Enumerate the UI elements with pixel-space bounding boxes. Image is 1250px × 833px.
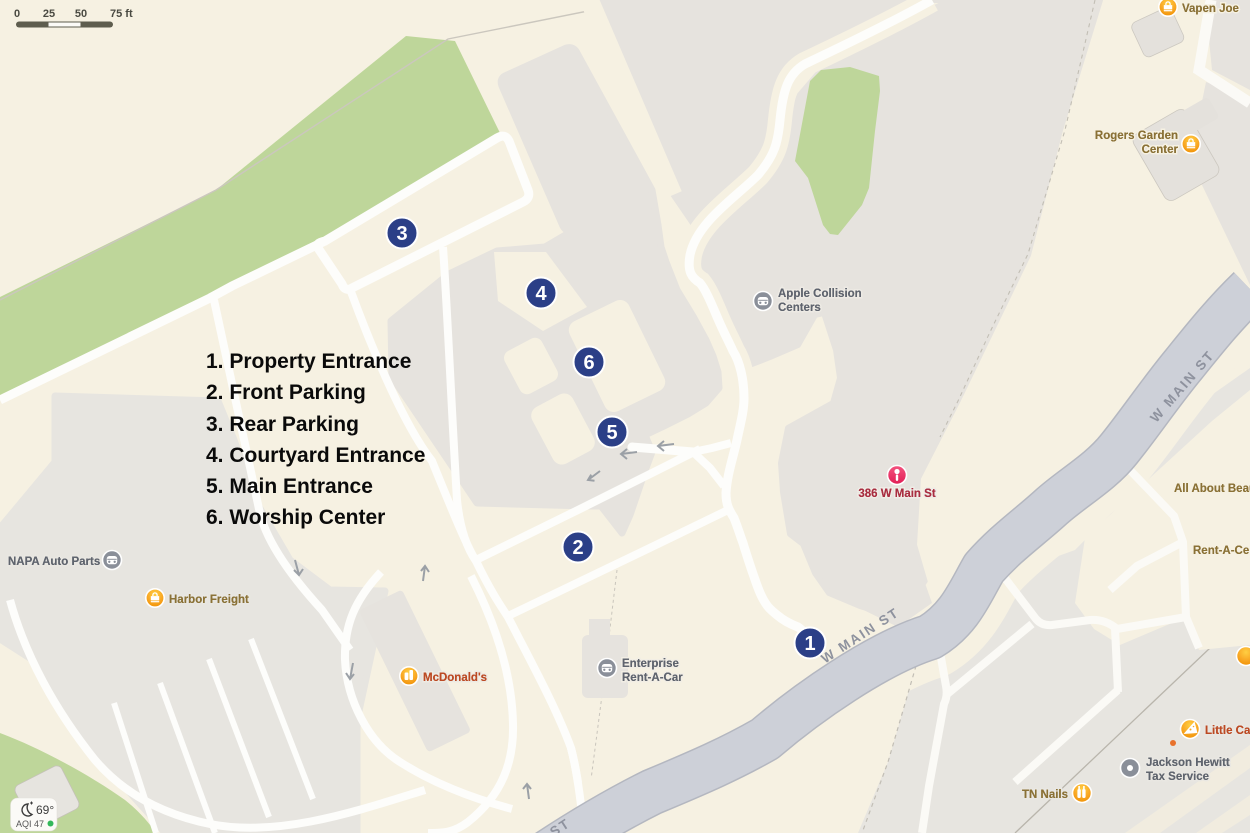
svg-text:0: 0 xyxy=(14,8,20,20)
svg-text:McDonald's: McDonald's xyxy=(423,672,487,684)
svg-text:NAPA Auto Parts: NAPA Auto Parts xyxy=(8,556,100,568)
svg-text:4: 4 xyxy=(535,283,547,305)
svg-text:Jackson Hewitt: Jackson Hewitt xyxy=(1146,757,1230,769)
svg-text:Rogers Garden: Rogers Garden xyxy=(1095,130,1178,142)
svg-text:4. Courtyard Entrance: 4. Courtyard Entrance xyxy=(206,444,425,467)
svg-text:All About Beau: All About Beau xyxy=(1174,483,1250,495)
svg-text:Center: Center xyxy=(1142,144,1179,156)
svg-text:25: 25 xyxy=(43,8,55,20)
svg-text:Centers: Centers xyxy=(778,302,821,314)
svg-text:6. Worship Center: 6. Worship Center xyxy=(206,506,385,529)
svg-text:2. Front Parking: 2. Front Parking xyxy=(206,381,366,404)
svg-text:Vapen Joe: Vapen Joe xyxy=(1182,3,1239,15)
svg-text:75 ft: 75 ft xyxy=(110,8,133,20)
svg-text:TN Nails: TN Nails xyxy=(1022,789,1068,801)
svg-text:3. Rear Parking: 3. Rear Parking xyxy=(206,413,359,436)
svg-text:6: 6 xyxy=(583,352,594,374)
svg-text:5. Main Entrance: 5. Main Entrance xyxy=(206,475,373,498)
svg-text:1. Property Entrance: 1. Property Entrance xyxy=(206,350,411,373)
svg-text:Little Cae: Little Cae xyxy=(1205,725,1250,737)
svg-text:2: 2 xyxy=(572,537,583,559)
svg-text:AQI 47: AQI 47 xyxy=(16,819,44,829)
svg-text:1: 1 xyxy=(804,633,815,655)
svg-text:Harbor Freight: Harbor Freight xyxy=(169,594,249,606)
svg-text:69°: 69° xyxy=(36,803,54,817)
svg-text:Rent-A-Cen: Rent-A-Cen xyxy=(1193,545,1250,557)
svg-text:50: 50 xyxy=(75,8,87,20)
svg-text:Tax Service: Tax Service xyxy=(1146,771,1209,783)
svg-text:Enterprise: Enterprise xyxy=(622,658,679,670)
svg-text:Apple Collision: Apple Collision xyxy=(778,288,862,300)
svg-text:386 W Main St: 386 W Main St xyxy=(858,488,935,500)
svg-text:5: 5 xyxy=(606,422,617,444)
svg-text:3: 3 xyxy=(396,223,407,245)
svg-text:Rent-A-Car: Rent-A-Car xyxy=(622,672,683,684)
